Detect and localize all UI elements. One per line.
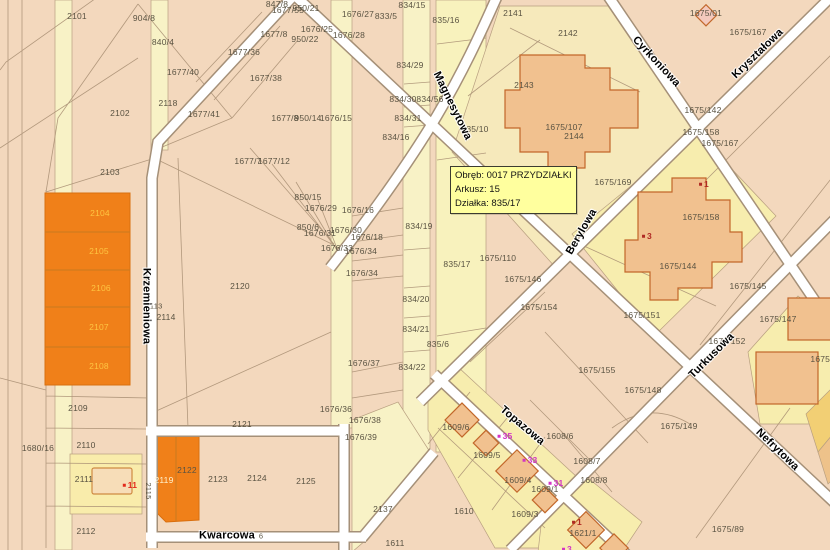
parcel-label: 1676/34 [345, 247, 377, 256]
address-label: 33 [523, 456, 538, 465]
parcel-label: 1675/142 [684, 106, 721, 115]
parcel-label: 834/15 [398, 1, 425, 10]
parcel-label: 835/16 [432, 16, 459, 25]
parcel-label: 1677/41 [188, 110, 220, 119]
parcel-label: 1677/12 [258, 157, 290, 166]
parcel-label: 1676/18 [351, 233, 383, 242]
info-dzialka: Działka: 835/17 [455, 197, 572, 211]
parcel-label: 1675/01 [690, 9, 722, 18]
parcel-label: 1675/145 [729, 282, 766, 291]
parcel-label: 1677/36 [228, 48, 260, 57]
parcel-label: 2125 [296, 477, 316, 486]
parcel-label: 834/31 [394, 114, 421, 123]
parcel-label: 834/20 [402, 295, 429, 304]
parcel-label: 1676/25 [301, 25, 333, 34]
parcel-label: 950/21 [292, 4, 319, 13]
parcel-label: 834/19 [405, 222, 432, 231]
address-label: 3 [562, 545, 572, 550]
parcel-label: 1677/8 [260, 30, 287, 39]
parcel-label: 2106 [91, 284, 111, 293]
parcel-label: 835/6 [427, 340, 449, 349]
parcel-label: 2111 [75, 475, 93, 484]
street-label: Kwarcowa [199, 531, 255, 542]
parcel-label: 950/22 [291, 35, 318, 44]
parcel-label: 1675/144 [659, 262, 696, 271]
parcel-label: 834/21 [402, 325, 429, 334]
address-label: 1 [699, 180, 709, 189]
parcel-label: 1608/8 [580, 476, 607, 485]
parcel-label: 1609/3 [511, 510, 538, 519]
parcel-label: 2102 [110, 109, 130, 118]
parcel-label: 1675/110 [480, 254, 516, 263]
parcel-label: 1675/169 [594, 178, 631, 187]
parcel-label: 834/56 [416, 95, 443, 104]
parcel-label: 1609/5 [473, 451, 500, 460]
parcel-label: 1676/29 [305, 204, 337, 213]
parcel-label: 1676/34 [346, 269, 378, 278]
parcel-label: 1608/7 [573, 457, 600, 466]
parcel-label: 1676/38 [349, 416, 381, 425]
parcel-label: 2119 [154, 476, 173, 485]
parcel-label: 2115 [144, 483, 152, 500]
parcel-label: 1621/1 [569, 529, 596, 538]
parcel-label: 1609/6 [442, 423, 469, 432]
parcel-label: 904/8 [133, 14, 155, 23]
parcel-label: 1675/8 [810, 355, 830, 364]
parcel-label: 1675/149 [660, 422, 697, 431]
parcel-label: 2120 [230, 282, 250, 291]
parcel-label: 834/29 [396, 61, 423, 70]
parcel-label: 1675/158 [682, 128, 719, 137]
map-canvas[interactable]: 2101904/8840/41677/402118210221031677/41… [0, 0, 830, 550]
address-label: 1 [572, 518, 582, 527]
street-label: Berylowa [565, 207, 600, 256]
parcel-label: 1610 [454, 507, 474, 516]
parcel-label: 2118 [158, 99, 177, 108]
parcel-label: 1676/37 [348, 359, 380, 368]
parcel-label: 2107 [89, 323, 109, 332]
parcel-label: 1676/16 [342, 206, 374, 215]
parcel-label: 950/14 [294, 114, 321, 123]
parcel-label: 840/4 [152, 38, 174, 47]
parcel-label: 1677/40 [167, 68, 199, 77]
info-arkusz: Arkusz: 15 [455, 183, 572, 197]
parcel-label: 850/15 [294, 193, 321, 202]
parcel-label: 1675/154 [520, 303, 557, 312]
parcel-label: 834/16 [382, 133, 409, 142]
address-label: 3 [642, 232, 652, 241]
map-labels-layer: 2101904/8840/41677/402118210221031677/41… [0, 0, 830, 550]
address-label: 11 [123, 481, 137, 490]
parcel-label: 1677/38 [250, 74, 282, 83]
parcel-label: 2112 [76, 527, 95, 536]
parcel-label: 834/22 [398, 363, 425, 372]
parcel-label: 1611 [385, 539, 404, 548]
street-label: Nefrytowa [753, 427, 800, 473]
address-label: 35 [498, 432, 513, 441]
street-label: Cyrkoniowa [630, 35, 682, 90]
parcel-label: 6 [259, 532, 263, 540]
parcel-label: 1675/158 [682, 213, 719, 222]
parcel-label: 1676/28 [333, 31, 365, 40]
parcel-label: 1675/147 [759, 315, 796, 324]
info-obreb: Obręb: 0017 PRZYDZIAŁKI [455, 169, 572, 183]
parcel-label: 1608/6 [546, 432, 573, 441]
parcel-label: 2123 [208, 475, 228, 484]
parcel-label: 835/17 [443, 260, 470, 269]
parcel-label: 1675/151 [623, 311, 660, 320]
parcel-label: 1676/36 [320, 405, 352, 414]
parcel-label: 2105 [89, 247, 109, 256]
parcel-label: 2108 [89, 362, 109, 371]
street-label: Magnesytowa [431, 70, 473, 142]
parcel-label: 2124 [247, 474, 267, 483]
parcel-label: 2103 [100, 168, 120, 177]
parcel-label: 2101 [67, 12, 87, 21]
street-label: Topazowa [498, 404, 546, 447]
parcel-label: 2109 [68, 404, 88, 413]
parcel-label: 2137 [373, 505, 393, 514]
parcel-label: 2143 [514, 81, 534, 90]
parcel-label: 1675/89 [712, 525, 744, 534]
parcel-info-box: Obręb: 0017 PRZYDZIAŁKI Arkusz: 15 Dział… [450, 166, 577, 214]
parcel-label: 2121 [232, 420, 252, 429]
parcel-label: 1675/155 [578, 366, 615, 375]
parcel-label: 1675/167 [701, 139, 738, 148]
parcel-label: 1680/16 [22, 444, 54, 453]
parcel-label: 2122 [177, 466, 197, 475]
parcel-label: 833/5 [375, 12, 397, 21]
street-label: Krzemieniowa [141, 268, 152, 344]
parcel-label: 2141 [503, 9, 523, 18]
parcel-label: 1675/148 [624, 386, 661, 395]
parcel-label: 2142 [558, 29, 578, 38]
parcel-label: 1676/15 [320, 114, 352, 123]
parcel-label: 2114 [156, 313, 175, 322]
parcel-label: 1675/146 [504, 275, 541, 284]
parcel-label: 834/30 [389, 95, 416, 104]
parcel-label: 1676/39 [345, 433, 377, 442]
parcel-label: 1676/27 [342, 10, 374, 19]
parcel-label: 1609/4 [504, 476, 531, 485]
address-label: 31 [549, 479, 564, 488]
parcel-label: 2110 [76, 441, 95, 450]
parcel-label: 2104 [90, 209, 110, 218]
parcel-label: 2144 [564, 132, 584, 141]
parcel-label: 1675/167 [729, 28, 766, 37]
